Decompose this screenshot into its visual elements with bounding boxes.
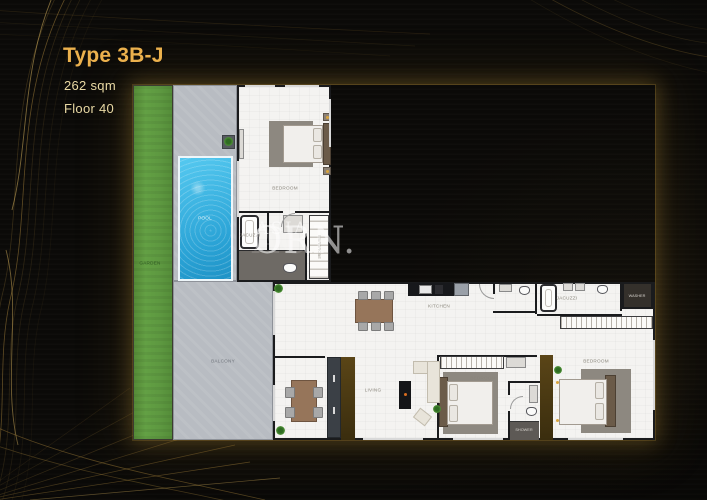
fireplace-dot [404,393,407,396]
dresser [239,129,244,159]
pillow [313,145,322,159]
cabinet [506,357,526,368]
window [273,385,275,421]
lamp-icon [556,381,559,384]
wall [493,311,537,313]
dining-table [355,299,393,323]
garden-label: GARDEN [139,260,160,265]
wall [508,382,510,395]
living-label: LIVING [365,387,382,392]
shower-label: SHOWER [515,428,532,432]
chair-icon [358,291,368,300]
fridge-icon [454,283,469,296]
pillow [595,403,604,420]
window [237,161,239,217]
lamp-icon [326,170,329,173]
window [363,438,423,440]
feature-wall [540,355,553,440]
chair-icon [371,291,381,300]
watermark-suffix-part: ASIA [256,219,309,239]
guest-jacuzzi-label: JACUZZI [557,295,578,300]
toilet-icon [283,263,297,273]
pool-label: POOL [198,215,212,220]
window [329,99,331,147]
chair-icon [285,407,295,418]
bedroom-middle-label: BEDROOM [470,375,496,380]
sink-module [435,285,443,294]
wall [295,211,331,213]
plant-icon [433,405,441,413]
wall [535,282,537,314]
toilet-icon [597,285,608,294]
door-handle [333,407,335,414]
window [245,85,275,87]
page: Type 3B-J 262 sqm Floor 40 AC ORN. ASIA [0,0,707,500]
unit-floor-label: Floor 40 [64,101,114,116]
plant-icon [224,137,233,146]
pillow [449,405,458,422]
chair-icon [371,322,381,331]
pillow [449,384,458,401]
plant-icon [276,426,285,435]
window [273,291,275,335]
sliding-door-panel [327,357,341,438]
balcony-label: BALCONY [211,358,235,363]
pillow [595,382,604,399]
window [285,85,319,87]
wall [237,211,283,213]
stove-icon [419,285,432,294]
window [653,340,655,410]
jacuzzi-tub-icon [540,284,557,312]
washer-label: WASHER [629,294,646,298]
kitchen-label: KITCHEN [428,303,450,308]
unit-type-title: Type 3B-J [63,44,164,68]
unit-area-label: 262 sqm [64,78,116,93]
plant-icon [554,366,562,374]
sink-icon [563,283,573,291]
sink-icon [499,284,512,292]
chair-icon [384,322,394,331]
floor-plan: GARDEN POOL BALCONY BEDROOM JACUZZI WARD… [133,85,655,440]
toilet-icon [519,286,530,295]
chair-icon [285,387,295,398]
plant-icon [274,284,283,293]
toilet-icon [526,407,537,416]
feature-wall [341,357,355,440]
lamp-icon [556,419,559,422]
pillow [313,128,322,142]
sofa [427,361,440,403]
chair-icon [313,407,323,418]
wall [273,356,325,358]
chair-icon [358,322,368,331]
sink-icon [575,283,585,291]
wardrobe-rail [560,316,653,329]
wall [508,381,540,383]
bedroom-right-label: BEDROOM [583,358,609,363]
window [568,438,623,440]
bedroom-top-label: BEDROOM [272,185,298,190]
vanity-icon [529,385,538,403]
window [453,438,503,440]
door-handle [333,375,335,382]
wardrobe-rail [440,356,504,369]
chair-icon [313,387,323,398]
chair-icon [384,291,394,300]
